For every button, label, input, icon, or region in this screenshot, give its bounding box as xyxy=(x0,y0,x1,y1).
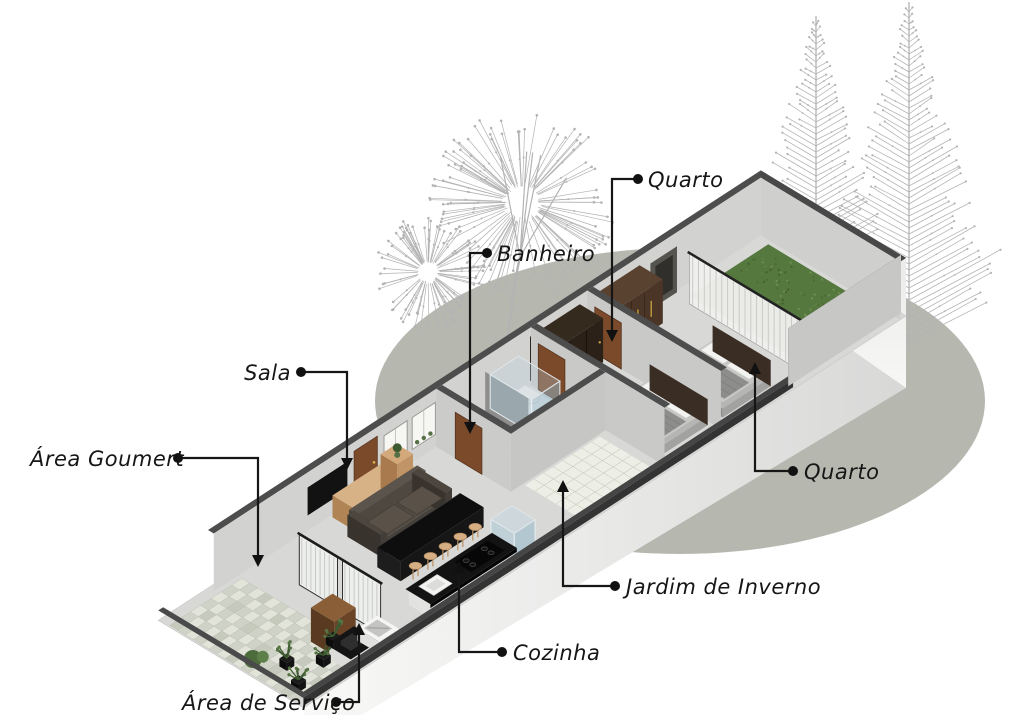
leader-dot-jardim-de-inverno xyxy=(610,581,620,591)
label-text-banheiro: Banheiro xyxy=(497,242,595,266)
leader-dot-banheiro xyxy=(482,248,492,258)
leader-dot-quarto-1 xyxy=(633,174,643,184)
label-text-cozinha: Cozinha xyxy=(513,641,600,665)
label-text-quarto-2: Quarto xyxy=(804,460,879,484)
label-text-quarto-1: Quarto xyxy=(648,168,723,192)
label-text-area-de-servico: Área de Serviço xyxy=(180,690,355,715)
leader-dot-cozinha xyxy=(497,647,507,657)
label-text-area-goumert: Área Goumert xyxy=(28,446,184,471)
leader-dot-quarto-2 xyxy=(788,466,798,476)
label-text-sala: Sala xyxy=(244,361,291,385)
leader-dot-sala xyxy=(296,367,306,377)
label-text-jardim-de-inverno: Jardim de Inverno xyxy=(622,575,821,599)
floor-plan-illustration: Quarto Banheiro Sala Área Goumert Quarto xyxy=(0,0,1024,715)
axonometric-scene: Quarto Banheiro Sala Área Goumert Quarto xyxy=(0,0,1024,715)
